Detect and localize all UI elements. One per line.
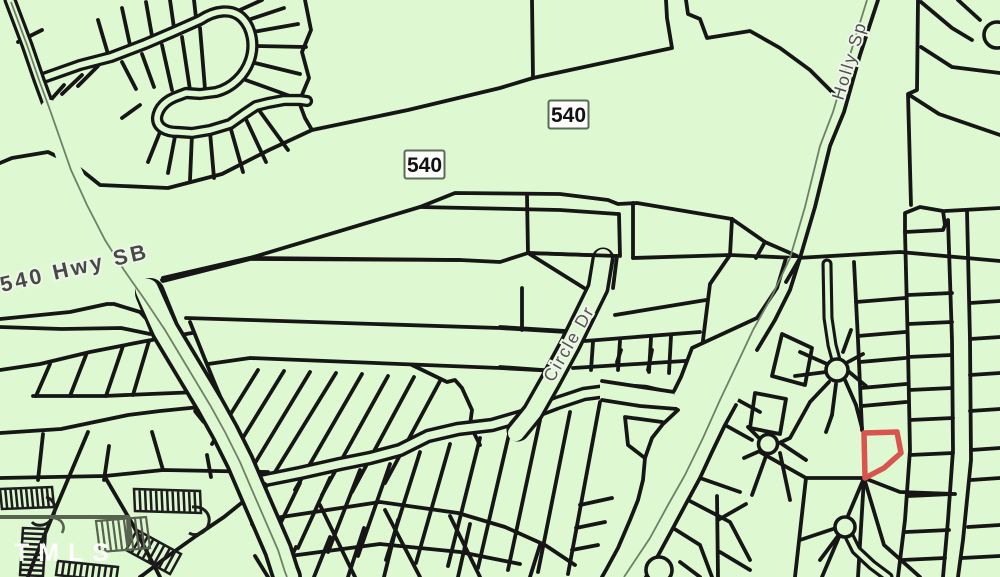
svg-text:540: 540 bbox=[407, 154, 442, 177]
svg-text:540: 540 bbox=[551, 104, 586, 127]
svg-text:TMLS: TMLS bbox=[14, 539, 118, 567]
